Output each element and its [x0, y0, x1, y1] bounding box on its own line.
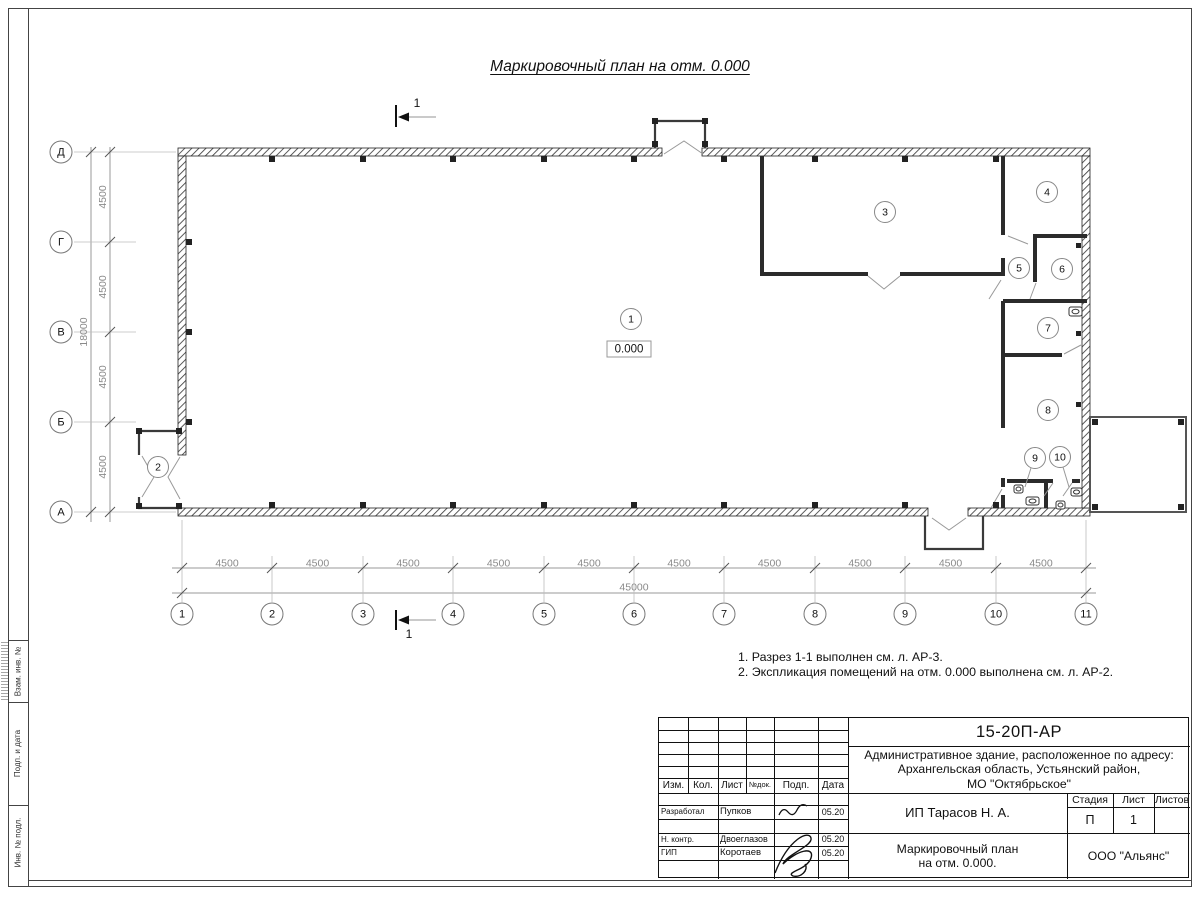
- tb-role: Н. контр.: [659, 833, 718, 846]
- notes: 1. Разрез 1-1 выполнен см. л. АР-3. 2. Э…: [738, 650, 1113, 679]
- project-line: Архангельская область, Устьянский район,: [898, 762, 1141, 776]
- edge-stamp-text: [1, 642, 8, 700]
- tb-name: Пупков: [718, 805, 774, 819]
- tb-col-list: Лист: [718, 778, 746, 793]
- tb-col-podp: Подп.: [774, 778, 818, 793]
- signature: [775, 835, 812, 876]
- sheet-frame-bottom: [28, 880, 1192, 881]
- sheet-label: Лист: [1113, 793, 1154, 807]
- page-title: Маркировочный план на отм. 0.000: [460, 58, 780, 76]
- drawing-sheet: 0.000 1 1 145002450034500445005450064500…: [0, 0, 1200, 900]
- signature: [779, 805, 807, 815]
- tb-date: 05.20: [818, 805, 848, 819]
- tb-date: 05.20: [818, 846, 848, 860]
- tb-col-data: Дата: [818, 778, 848, 793]
- tb-col-ndok: №док.: [746, 778, 774, 793]
- note-line: 1. Разрез 1-1 выполнен см. л. АР-3.: [738, 650, 1113, 665]
- tb-col-izm: Изм.: [659, 778, 688, 793]
- sheet-frame-left: [28, 8, 29, 887]
- title-block: Изм. Кол. Лист №док. Подп. Дата Разработ…: [658, 717, 1189, 878]
- frame-strip-cell: Подп. и дата: [8, 702, 28, 805]
- project-name: Административное здание, расположенное п…: [848, 746, 1190, 793]
- doc-number: 15-20П-АР: [848, 718, 1190, 746]
- tb-name: Коротаев: [718, 846, 774, 860]
- sheet-name-line: Маркировочный план: [897, 842, 1019, 856]
- stage-value: П: [1067, 807, 1113, 833]
- frame-strip-cell: Взам. инв. №: [8, 640, 28, 702]
- tb-role: Разработал: [659, 805, 718, 819]
- frame-strip-cell: Инв. № подл.: [8, 805, 28, 880]
- sheet-name: Маркировочный план на отм. 0.000.: [848, 833, 1067, 879]
- tb-col-kol: Кол.: [688, 778, 718, 793]
- company-name: ООО "Альянс": [1067, 833, 1190, 879]
- tb-role: ГИП: [659, 846, 718, 860]
- project-line: Административное здание, расположенное п…: [864, 748, 1174, 762]
- tb-date: 05.20: [818, 833, 848, 846]
- sheet-name-line: на отм. 0.000.: [918, 856, 996, 870]
- project-line: МО "Октябрьское": [967, 777, 1071, 791]
- note-line: 2. Экспликация помещений на отм. 0.000 в…: [738, 665, 1113, 680]
- client-name: ИП Тарасов Н. А.: [848, 793, 1067, 833]
- sheets-label: Листов: [1154, 793, 1190, 807]
- tb-name: Двоеглазов: [718, 833, 774, 846]
- stage-label: Стадия: [1067, 793, 1113, 807]
- sheet-value: 1: [1113, 807, 1154, 833]
